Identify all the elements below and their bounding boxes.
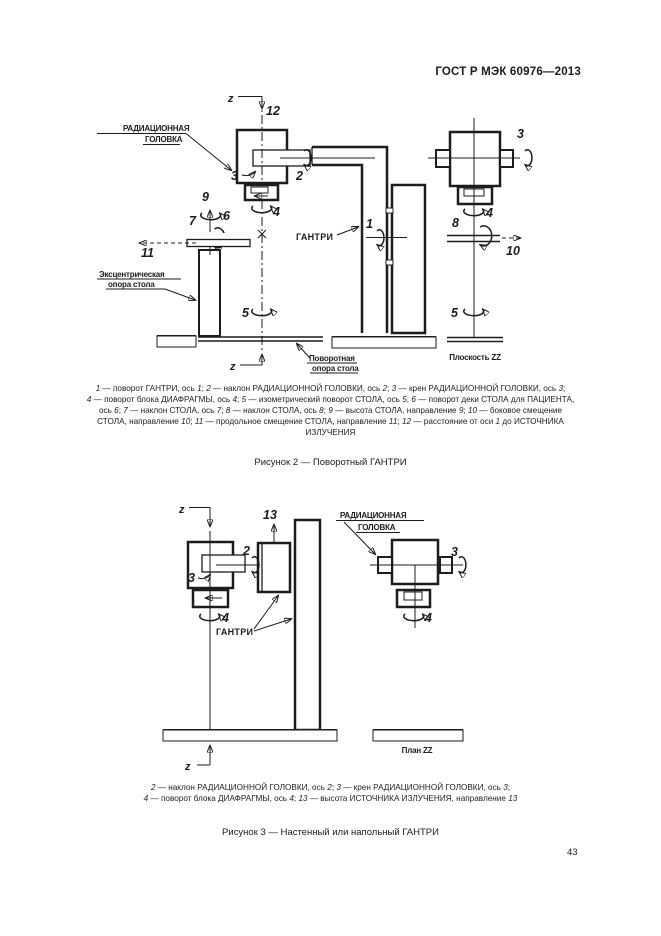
- figure3-caption: 2 — наклон РАДИАЦИОННОЙ ГОЛОВКИ, ось 2; …: [0, 783, 661, 805]
- fig2-table-frame: [187, 240, 250, 247]
- fig2-radiation-head-label-line1: РАДИАЦИОННАЯ: [123, 124, 190, 133]
- fig3-radiation-head-label-line2: ГОЛОВКА: [358, 523, 396, 532]
- fig3-gantry-box: [258, 543, 290, 592]
- fig2r-zz-plane-line: [447, 338, 503, 342]
- fig3r-axis4: 4: [424, 611, 432, 625]
- fig3-axis4: 4: [221, 611, 229, 625]
- ground-hatch: [157, 336, 196, 347]
- fig3-gantry-label: ГАНТРИ: [216, 627, 253, 637]
- fig2-axis1: 1: [366, 217, 373, 231]
- fig2-gantry-label: ГАНТРИ: [296, 232, 333, 242]
- fig2-rotary-support-label-line2: опора стола: [312, 364, 359, 373]
- fig3-axis2: 2: [242, 544, 250, 558]
- fig2-axis4: 4: [272, 205, 280, 219]
- fig2-right-diagram: 3 4 8 10 5 Плоскость ZZ: [428, 118, 532, 362]
- leader-line: [186, 134, 231, 171]
- rotation-axis3-symbol: [525, 150, 532, 166]
- fig3-axis3: 3: [188, 571, 195, 585]
- fig2r-axis3: 3: [517, 127, 524, 141]
- fig3-wall-column: [295, 520, 320, 730]
- caption-line: 2 — наклон РАДИАЦИОННОЙ ГОЛОВКИ, ось 2; …: [0, 783, 661, 794]
- caption-line: СТОЛА, направление 10; 11 — продольное с…: [0, 417, 661, 428]
- fig2r-axis4: 4: [485, 206, 493, 220]
- caption-line: 4 — поворот блока ДИАФРАГМЫ, ось 4; 13 —…: [0, 794, 661, 805]
- fig3-direction13: 13: [263, 508, 277, 522]
- document-page: ГОСТ Р МЭК 60976—2013 РАДИАЦИОННАЯ ГОЛОВ…: [0, 0, 661, 936]
- rotation-axis4-symbol: [404, 614, 424, 621]
- document-header: ГОСТ Р МЭК 60976—2013: [435, 66, 581, 78]
- caption-line: 1 — поворот ГАНТРИ, ось 1; 2 — наклон РА…: [0, 384, 661, 395]
- fig3-left-diagram: z 2 3 4 13 ГАНТРИ z: [163, 504, 337, 773]
- caption-line: ось 6; 7 — наклон СТОЛА, ось 7; 8 — накл…: [0, 406, 661, 417]
- fig2-axis3: 3: [231, 169, 238, 183]
- fig2-table-column: [199, 250, 220, 336]
- fig2-eccentric-support-label-line1: Эксцентрическая: [99, 270, 165, 279]
- fig2-axis9: 9: [202, 190, 209, 204]
- caption-line: ИЗЛУЧЕНИЯ: [0, 428, 661, 439]
- fig2r-axis5: 5: [451, 306, 459, 320]
- fig2-axis2: 2: [295, 169, 303, 183]
- fig2-left-diagram: РАДИАЦИОННАЯ ГОЛОВКА z 12 2 3: [97, 93, 436, 373]
- figure2-drawing: РАДИАЦИОННАЯ ГОЛОВКА z 12 2 3: [0, 88, 661, 380]
- figure2-caption: 1 — поворот ГАНТРИ, ось 1; 2 — наклон РА…: [0, 384, 661, 439]
- figure3-drawing: z 2 3 4 13 ГАНТРИ z РАДИАЦИОННАЯ: [0, 495, 661, 780]
- fig3-radiation-head-label-line1: РАДИАЦИОННАЯ: [340, 511, 407, 520]
- page-number: 43: [567, 847, 578, 858]
- figure2-title: Рисунок 2 — Поворотный ГАНТРИ: [0, 457, 661, 468]
- fig2-rotary-support-label-line1: Поворотная: [309, 354, 355, 363]
- fig3-z-top-label: z: [178, 504, 185, 516]
- fig2r-plane-zz-label: Плоскость ZZ: [449, 353, 501, 362]
- fig2-radiation-head-label-line2: ГОЛОВКА: [145, 135, 183, 144]
- ground-hatch: [332, 337, 436, 348]
- fig2-distance-12: 12: [266, 104, 280, 118]
- fig2-eccentric-support-label-line2: опора стола: [108, 280, 155, 289]
- fig3-arm-inner: [202, 555, 245, 572]
- fig2-z-top-label: z: [227, 93, 234, 105]
- fig2-rotary-plate: [198, 337, 323, 341]
- fig2r-radiation-head-box: [450, 132, 500, 186]
- ground-hatch: [373, 730, 463, 741]
- fig2-axis5: 5: [242, 306, 250, 320]
- fig2r-axis10: 10: [506, 244, 520, 258]
- fig2-axis6: 6: [223, 209, 231, 223]
- fig3r-plan-zz-label: План ZZ: [402, 746, 433, 755]
- fig2-axis7: 7: [189, 214, 197, 228]
- fig2-diaphragm-insert: [251, 187, 268, 193]
- caption-line: 4 — поворот блока ДИАФРАГМЫ, ось 4; 5 — …: [0, 395, 661, 406]
- fig3r-axis3: 3: [451, 545, 458, 559]
- figure3-title: Рисунок 3 — Настенный или напольный ГАНТ…: [0, 827, 661, 838]
- fig3-z-bottom-label: z: [184, 761, 191, 773]
- fig2-gantry-back-column: [392, 185, 425, 333]
- fig2-arm-outer-bottom: [312, 165, 362, 333]
- fig2-z-bottom-label: z: [229, 361, 236, 373]
- fig3r-diaphragm-insert: [404, 592, 422, 600]
- ground-hatch: [163, 730, 337, 741]
- rotation-axis6-symbol: [201, 213, 221, 220]
- fig2r-axis8: 8: [452, 216, 459, 230]
- fig2-tabletop: [133, 233, 253, 240]
- fig2-axis11: 11: [141, 246, 154, 260]
- fig3-right-diagram: РАДИАЦИОННАЯ ГОЛОВКА 3 4 План ZZ: [336, 511, 466, 755]
